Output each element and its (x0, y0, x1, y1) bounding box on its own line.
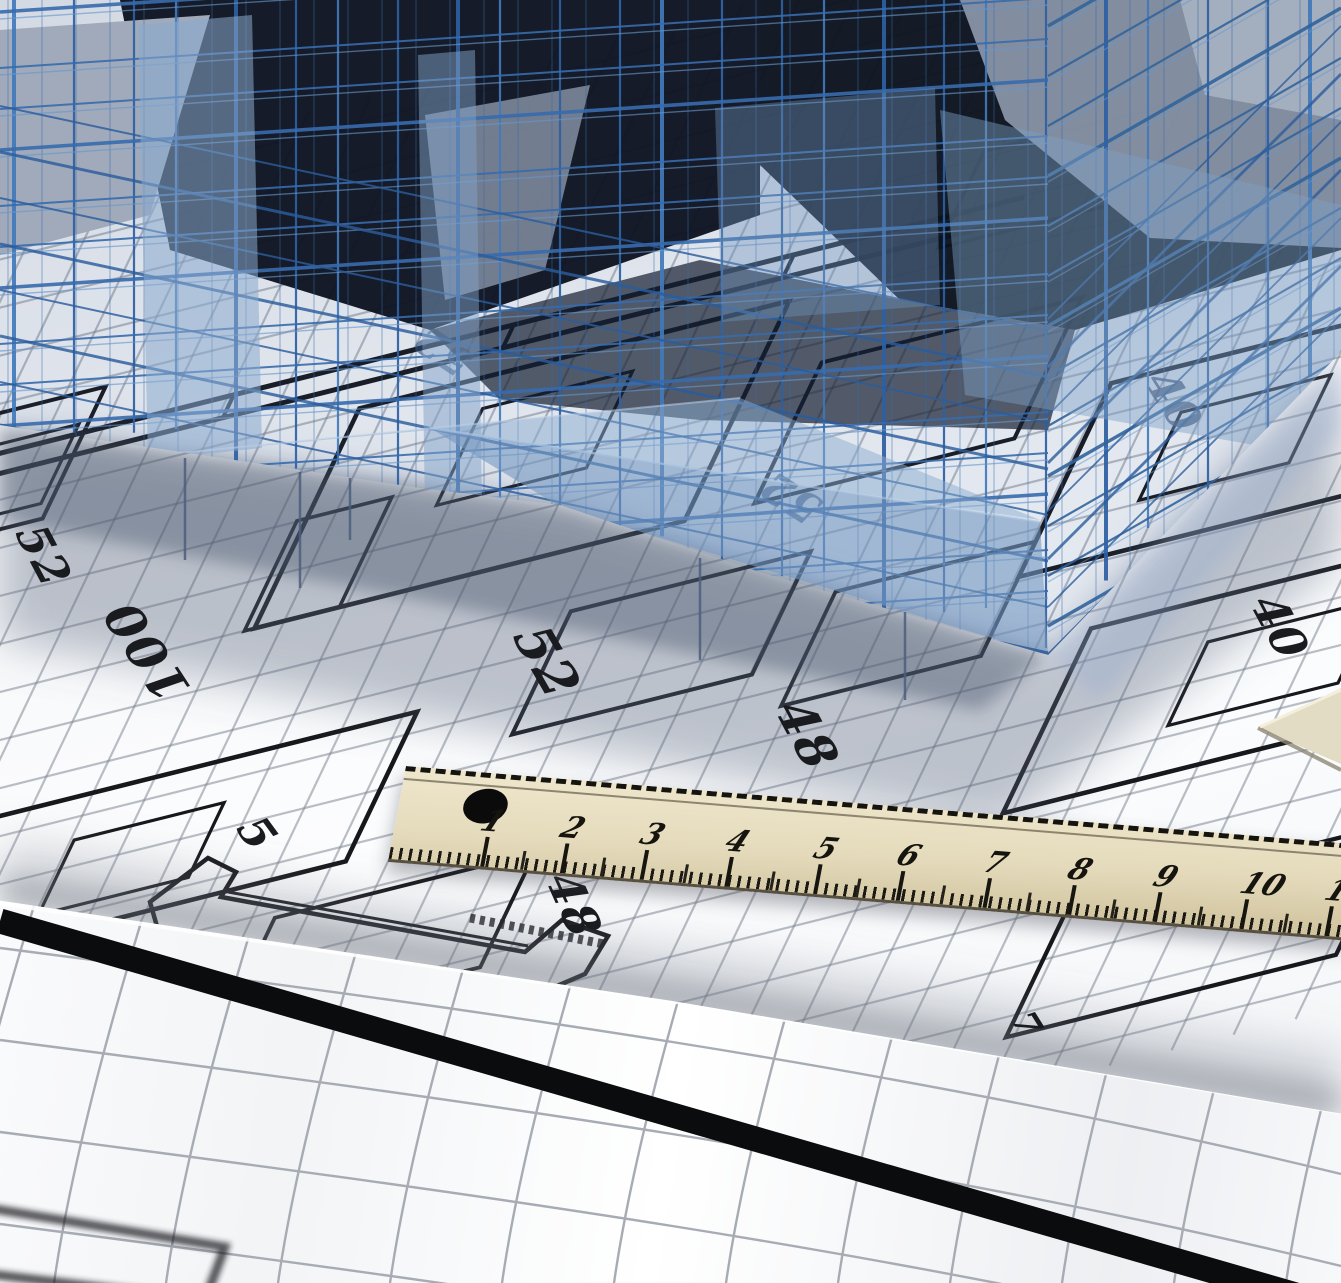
ruler-number: 6 (891, 838, 927, 874)
blueprint-scene: 52 100 52 48 40 40 5 48 7 52 52 1 2 3 4 … (0, 0, 1341, 1283)
ruler-number: 3 (635, 817, 671, 853)
ruler-number: 8 (1062, 852, 1098, 888)
ruler-number: 5 (808, 831, 844, 867)
ruler-number: 7 (977, 845, 1013, 881)
ruler-number: 11 (1319, 873, 1341, 910)
ruler-number: 2 (555, 811, 591, 847)
ruler-number: 10 (1234, 866, 1291, 903)
ruler-number: 4 (719, 824, 755, 860)
ruler-number: 9 (1148, 859, 1184, 895)
